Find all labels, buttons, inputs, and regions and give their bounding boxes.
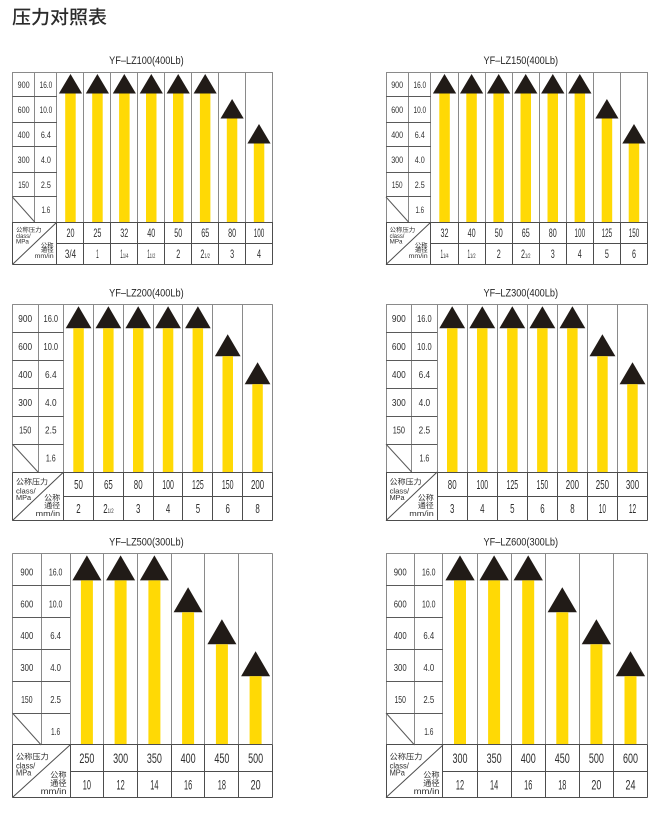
svg-text:4: 4	[578, 247, 582, 261]
svg-text:900: 900	[394, 567, 407, 578]
svg-text:12: 12	[629, 501, 636, 516]
svg-text:400: 400	[181, 750, 196, 766]
svg-text:400: 400	[394, 631, 407, 642]
svg-text:3/4: 3/4	[65, 247, 76, 261]
svg-text:65: 65	[201, 226, 209, 240]
svg-text:2.5: 2.5	[415, 180, 425, 190]
svg-text:80: 80	[134, 477, 143, 492]
svg-text:4.0: 4.0	[50, 663, 61, 674]
svg-text:4: 4	[257, 247, 261, 261]
svg-text:300: 300	[20, 663, 33, 674]
svg-text:10.0: 10.0	[422, 599, 436, 610]
svg-text:150: 150	[222, 477, 234, 492]
svg-text:mm/in: mm/in	[414, 787, 440, 796]
svg-text:2: 2	[176, 247, 180, 261]
svg-text:40: 40	[147, 226, 155, 240]
svg-text:450: 450	[555, 750, 570, 766]
svg-text:50: 50	[174, 226, 182, 240]
svg-text:1/2: 1/2	[150, 254, 156, 260]
svg-text:10.0: 10.0	[40, 105, 53, 115]
svg-text:1: 1	[96, 247, 99, 261]
svg-text:6.4: 6.4	[415, 130, 425, 140]
svg-text:8: 8	[255, 501, 259, 516]
svg-text:1.6: 1.6	[416, 205, 425, 215]
svg-text:4.0: 4.0	[423, 663, 434, 674]
svg-text:6.4: 6.4	[419, 370, 431, 381]
svg-text:600: 600	[391, 105, 403, 115]
svg-text:4.0: 4.0	[415, 155, 425, 165]
svg-text:900: 900	[392, 314, 406, 325]
svg-text:65: 65	[104, 477, 113, 492]
svg-text:250: 250	[596, 477, 609, 492]
svg-text:150: 150	[19, 426, 31, 437]
svg-text:150: 150	[395, 695, 407, 706]
svg-text:4: 4	[166, 501, 170, 516]
svg-text:2: 2	[76, 501, 80, 516]
svg-text:600: 600	[18, 342, 32, 353]
svg-text:80: 80	[448, 477, 457, 492]
svg-text:2.5: 2.5	[50, 695, 61, 706]
svg-text:400: 400	[521, 750, 536, 766]
svg-text:mm/in: mm/in	[35, 253, 54, 260]
svg-text:25: 25	[93, 226, 101, 240]
svg-text:150: 150	[18, 180, 29, 190]
svg-text:YF–LZ150(400Lb): YF–LZ150(400Lb)	[484, 55, 559, 67]
svg-text:1.6: 1.6	[51, 727, 60, 738]
svg-text:2.5: 2.5	[419, 426, 431, 437]
svg-text:18: 18	[218, 776, 226, 792]
svg-text:6.4: 6.4	[45, 370, 57, 381]
svg-text:200: 200	[251, 477, 264, 492]
svg-text:100: 100	[476, 477, 488, 492]
svg-text:10.0: 10.0	[49, 599, 63, 610]
svg-text:14: 14	[490, 776, 498, 792]
svg-text:10: 10	[599, 501, 606, 516]
svg-text:300: 300	[394, 663, 407, 674]
svg-text:12: 12	[456, 776, 464, 792]
svg-text:mm/in: mm/in	[36, 509, 61, 518]
svg-text:450: 450	[214, 750, 229, 766]
svg-text:mm/in: mm/in	[41, 787, 67, 796]
svg-text:500: 500	[248, 750, 263, 766]
svg-text:400: 400	[18, 370, 32, 381]
svg-text:600: 600	[20, 599, 33, 610]
svg-text:4.0: 4.0	[45, 398, 57, 409]
svg-text:mm/in: mm/in	[409, 509, 434, 518]
svg-text:16: 16	[524, 776, 532, 792]
svg-text:50: 50	[495, 226, 503, 240]
svg-text:200: 200	[566, 477, 579, 492]
svg-text:YF–LZ500(300Lb): YF–LZ500(300Lb)	[109, 536, 184, 548]
svg-text:16.0: 16.0	[40, 80, 53, 90]
svg-text:5: 5	[605, 247, 609, 261]
svg-text:1.6: 1.6	[419, 454, 429, 465]
svg-text:20: 20	[67, 226, 75, 240]
svg-text:1.6: 1.6	[424, 727, 433, 738]
svg-text:100: 100	[575, 226, 586, 240]
svg-text:16.0: 16.0	[44, 314, 59, 325]
svg-text:16.0: 16.0	[49, 567, 63, 578]
svg-text:125: 125	[506, 477, 518, 492]
svg-text:YF–LZ100(400Lb): YF–LZ100(400Lb)	[109, 55, 184, 67]
svg-text:10.0: 10.0	[414, 105, 427, 115]
svg-text:1/2: 1/2	[470, 254, 476, 260]
svg-text:mm/in: mm/in	[409, 253, 428, 260]
svg-text:100: 100	[162, 477, 174, 492]
svg-text:12: 12	[117, 776, 125, 792]
svg-text:900: 900	[391, 80, 403, 90]
svg-text:4.0: 4.0	[419, 398, 431, 409]
svg-text:50: 50	[74, 477, 83, 492]
svg-text:150: 150	[393, 426, 405, 437]
svg-text:YF–LZ300(400Lb): YF–LZ300(400Lb)	[484, 287, 559, 299]
svg-text:MPa: MPa	[390, 239, 403, 246]
svg-text:3: 3	[450, 501, 454, 516]
svg-text:2.5: 2.5	[423, 695, 434, 706]
svg-text:2.5: 2.5	[45, 426, 57, 437]
svg-text:6: 6	[632, 247, 636, 261]
svg-text:MPa: MPa	[16, 239, 29, 246]
svg-text:8: 8	[570, 501, 574, 516]
svg-text:YF–LZ200(400Lb): YF–LZ200(400Lb)	[109, 287, 184, 299]
svg-text:32: 32	[120, 226, 128, 240]
svg-text:16.0: 16.0	[422, 567, 436, 578]
svg-text:1/2: 1/2	[204, 254, 210, 260]
svg-text:250: 250	[79, 750, 94, 766]
svg-text:16.0: 16.0	[417, 314, 432, 325]
svg-text:900: 900	[20, 567, 33, 578]
svg-text:1/2: 1/2	[108, 508, 114, 515]
svg-text:MPa: MPa	[390, 769, 406, 778]
svg-text:300: 300	[453, 750, 468, 766]
svg-text:6.4: 6.4	[41, 130, 51, 140]
svg-text:65: 65	[522, 226, 530, 240]
svg-text:4.0: 4.0	[41, 155, 51, 165]
svg-text:150: 150	[392, 180, 403, 190]
svg-text:80: 80	[228, 226, 236, 240]
svg-text:900: 900	[18, 314, 32, 325]
svg-text:5: 5	[510, 501, 514, 516]
svg-text:300: 300	[113, 750, 128, 766]
svg-text:2.5: 2.5	[41, 180, 51, 190]
svg-text:24: 24	[626, 776, 636, 792]
svg-text:150: 150	[629, 226, 640, 240]
svg-text:900: 900	[18, 80, 30, 90]
svg-text:1/4: 1/4	[123, 254, 129, 260]
svg-text:MPa: MPa	[390, 493, 406, 502]
svg-text:400: 400	[20, 631, 33, 642]
svg-text:80: 80	[549, 226, 557, 240]
svg-text:500: 500	[589, 750, 604, 766]
svg-text:400: 400	[391, 130, 403, 140]
svg-text:10.0: 10.0	[44, 342, 59, 353]
svg-text:6.4: 6.4	[423, 631, 434, 642]
svg-text:600: 600	[18, 105, 30, 115]
svg-text:1.6: 1.6	[42, 205, 51, 215]
svg-text:3: 3	[230, 247, 234, 261]
svg-text:YF–LZ600(300Lb): YF–LZ600(300Lb)	[484, 536, 559, 548]
svg-text:3: 3	[136, 501, 140, 516]
svg-text:400: 400	[18, 130, 30, 140]
svg-text:300: 300	[18, 398, 32, 409]
svg-text:20: 20	[591, 776, 601, 792]
svg-text:4: 4	[480, 501, 484, 516]
svg-text:400: 400	[392, 370, 406, 381]
svg-text:2: 2	[497, 247, 501, 261]
svg-text:6: 6	[226, 501, 230, 516]
svg-text:600: 600	[392, 342, 406, 353]
svg-text:3: 3	[551, 247, 555, 261]
svg-text:300: 300	[18, 155, 30, 165]
svg-text:350: 350	[147, 750, 162, 766]
svg-text:150: 150	[21, 695, 33, 706]
svg-text:1/4: 1/4	[443, 254, 449, 260]
svg-text:600: 600	[394, 599, 407, 610]
svg-text:600: 600	[623, 750, 638, 766]
svg-text:MPa: MPa	[16, 493, 32, 502]
svg-text:32: 32	[441, 226, 449, 240]
svg-text:1/2: 1/2	[525, 254, 531, 260]
svg-text:300: 300	[392, 398, 406, 409]
svg-text:MPa: MPa	[16, 769, 32, 778]
svg-text:350: 350	[487, 750, 502, 766]
svg-text:1.6: 1.6	[46, 454, 56, 465]
svg-text:100: 100	[254, 226, 265, 240]
svg-text:40: 40	[468, 226, 476, 240]
svg-text:5: 5	[196, 501, 200, 516]
svg-text:125: 125	[602, 226, 613, 240]
svg-text:125: 125	[192, 477, 204, 492]
svg-text:16.0: 16.0	[414, 80, 427, 90]
svg-text:16: 16	[184, 776, 192, 792]
svg-text:6: 6	[540, 501, 544, 516]
svg-text:300: 300	[391, 155, 403, 165]
svg-text:18: 18	[558, 776, 566, 792]
svg-text:14: 14	[150, 776, 158, 792]
svg-text:300: 300	[626, 477, 639, 492]
svg-text:10.0: 10.0	[417, 342, 432, 353]
svg-text:10: 10	[83, 776, 91, 792]
svg-text:20: 20	[251, 776, 261, 792]
svg-text:150: 150	[537, 477, 549, 492]
svg-text:6.4: 6.4	[50, 631, 61, 642]
